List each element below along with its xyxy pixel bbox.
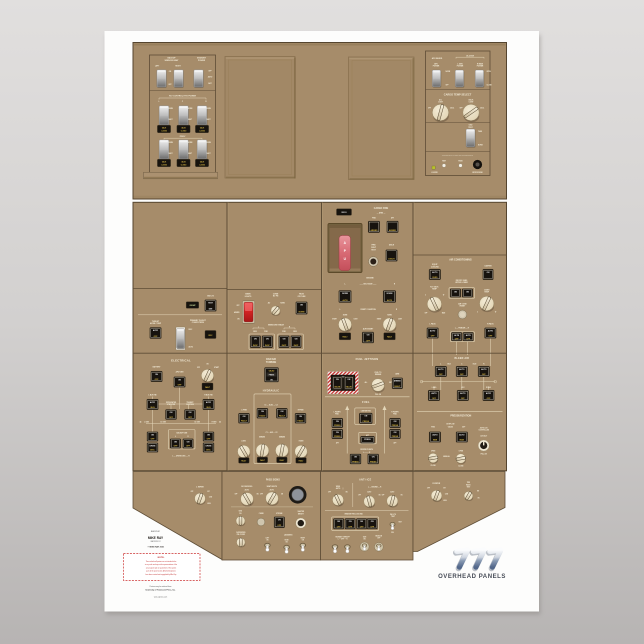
svg-text:AUTO: AUTO — [432, 271, 438, 274]
svg-text:OFF: OFF — [427, 488, 430, 490]
svg-text:ARM: ARM — [395, 373, 399, 376]
svg-text:PRESS: PRESS — [334, 436, 341, 438]
svg-text:BRIGHT: BRIGHT — [298, 514, 304, 516]
svg-text:ALTN: ALTN — [387, 299, 393, 302]
svg-text:R WIPER: R WIPER — [432, 483, 440, 485]
svg-text:COMPUTERS: COMPUTERS — [192, 322, 205, 324]
svg-text:CONT: CONT — [354, 319, 358, 321]
svg-text:FAULT: FAULT — [394, 385, 401, 388]
svg-text:ASYM COMP: ASYM COMP — [150, 322, 162, 325]
svg-text:L: L — [258, 326, 259, 328]
svg-text:RAM AIR: RAM AIR — [266, 358, 276, 361]
svg-text:L: L — [344, 283, 345, 285]
svg-text:AUTO: AUTO — [430, 329, 436, 332]
svg-text:NOSE: NOSE — [285, 539, 289, 541]
svg-text:OFF: OFF — [358, 495, 361, 497]
svg-text:WINDOW HEAT: WINDOW HEAT — [165, 59, 180, 62]
svg-text:COOL: COOL — [450, 108, 454, 110]
svg-text:CLOSED: CLOSED — [161, 130, 167, 132]
svg-text:DRIVE: DRIVE — [206, 445, 213, 447]
svg-text:WINDOW FWD LOGO IND: WINDOW FWD LOGO IND — [344, 514, 363, 516]
svg-text:Posters may be ordered from: Posters may be ordered from — [150, 585, 172, 588]
svg-text:CLOSED: CLOSED — [161, 164, 167, 166]
svg-text:START / IGNITION: START / IGNITION — [360, 308, 376, 311]
svg-text:ISLN: ISLN — [150, 407, 155, 409]
svg-text:FUEL JETTISON: FUEL JETTISON — [356, 357, 379, 361]
svg-text:ON: ON — [206, 364, 208, 366]
svg-text:—— EEC MODE ——: —— EEC MODE —— — [360, 283, 377, 285]
svg-text:MIKE RAY: MIKE RAY — [148, 536, 164, 540]
svg-text:LEFT: LEFT — [266, 537, 270, 539]
svg-text:ISLN: ISLN — [206, 407, 211, 409]
svg-text:POWER: POWER — [198, 60, 206, 62]
svg-text:ON: ON — [256, 493, 258, 495]
svg-text:NORM: NORM — [342, 293, 348, 295]
svg-text:◎: ◎ — [140, 421, 142, 424]
svg-text:OFF: OFF — [382, 495, 385, 497]
svg-text:IND LTS: IND LTS — [207, 296, 214, 298]
svg-text:DISCH: DISCH — [389, 259, 396, 261]
svg-text:L BUS TIE: L BUS TIE — [148, 394, 157, 396]
svg-text:INT: INT — [443, 488, 445, 490]
svg-text:L — DRIVE DISC — R: L — DRIVE DISC — R — [172, 456, 190, 458]
svg-text:OFF: OFF — [235, 493, 238, 495]
svg-text:ON: ON — [237, 318, 239, 320]
svg-text:CLOSE: CLOSE — [458, 465, 463, 467]
svg-text:PULL ON: PULL ON — [375, 394, 381, 396]
svg-text:OXYGEN: OXYGEN — [298, 296, 306, 298]
svg-text:WING: WING — [336, 486, 341, 488]
svg-text:AUTO: AUTO — [459, 433, 465, 436]
svg-text:AUTO: AUTO — [459, 368, 465, 371]
svg-text:INT: INT — [477, 491, 479, 493]
svg-text:R BUS TIE: R BUS TIE — [204, 394, 213, 396]
svg-text:SHUT: SHUT — [188, 153, 192, 155]
svg-text:PRESS: PRESS — [269, 375, 274, 377]
svg-text:AUTO: AUTO — [431, 392, 437, 395]
svg-text:ELECTRICAL: ELECTRICAL — [171, 359, 191, 363]
svg-text:◎: ◎ — [219, 421, 221, 424]
svg-text:DIM: DIM — [209, 309, 213, 311]
svg-text:NORM: NORM — [168, 108, 173, 110]
svg-text:OFF: OFF — [328, 492, 331, 494]
svg-text:L PUMPS: L PUMPS — [333, 411, 340, 413]
svg-text:AUTO: AUTO — [460, 392, 466, 395]
svg-text:POWER: POWER — [457, 66, 464, 68]
svg-text:OFF: OFF — [237, 305, 240, 307]
svg-text:AIR CONDITIONING: AIR CONDITIONING — [449, 258, 472, 261]
svg-text:DISCH: DISCH — [389, 245, 395, 247]
svg-text:COOL: COOL — [480, 108, 484, 110]
svg-text:R ENG: R ENG — [486, 387, 492, 389]
svg-text:DRIVE: DRIVE — [150, 445, 157, 447]
svg-text:NORM: NORM — [168, 142, 173, 144]
svg-text:CLOSED: CLOSED — [199, 130, 205, 132]
svg-text:NORM: NORM — [188, 108, 193, 110]
svg-text:INOP: INOP — [282, 345, 287, 347]
svg-text:MICROPHONE: MICROPHONE — [472, 172, 482, 174]
svg-text:ON: ON — [363, 539, 365, 541]
svg-text:CONTROLLED: CONTROLLED — [478, 429, 489, 431]
svg-text:PULL ON: PULL ON — [481, 454, 487, 456]
svg-text:OFF: OFF — [425, 313, 428, 315]
svg-text:TEST: TEST — [467, 486, 471, 488]
svg-text:SEAT BELTS: SEAT BELTS — [267, 485, 278, 488]
svg-text:ISLN: ISLN — [473, 363, 476, 365]
svg-text:BATTERY: BATTERY — [153, 366, 162, 369]
svg-text:PRESS: PRESS — [370, 461, 377, 463]
svg-text:FAULT: FAULT — [279, 415, 286, 418]
svg-text:POWER: POWER — [433, 66, 440, 68]
svg-text:L: L — [175, 436, 176, 438]
svg-text:NORM: NORM — [387, 293, 393, 295]
svg-text:CHIME: CHIME — [259, 513, 264, 515]
svg-text:ALTN: ALTN — [454, 334, 460, 337]
svg-text:CLOSE: CLOSE — [431, 465, 436, 467]
svg-text:© MIKE RAY 2001: © MIKE RAY 2001 — [148, 545, 165, 548]
svg-text:R PACK: R PACK — [487, 323, 494, 326]
svg-text:SHUT: SHUT — [188, 119, 192, 121]
svg-text:VALVE: VALVE — [334, 386, 341, 389]
svg-text:UNLKD: UNLKD — [269, 371, 275, 373]
svg-text:ON: ON — [401, 495, 403, 497]
svg-text:NO SMOKING: NO SMOKING — [241, 486, 253, 488]
svg-text:SHUT: SHUT — [168, 119, 172, 121]
svg-text:OPEN: OPEN — [487, 71, 491, 73]
svg-text:MAN: MAN — [433, 439, 438, 442]
svg-text:DIM: DIM — [391, 532, 393, 534]
svg-text:HIGH: HIGH — [443, 500, 446, 502]
svg-text:UPPER LOWER: UPPER LOWER — [455, 282, 468, 284]
svg-text:OFF: OFF — [168, 84, 171, 86]
svg-text:OVERSPEED: OVERSPEED — [236, 532, 246, 534]
svg-text:DISC: DISC — [150, 450, 155, 452]
svg-text:AUTOSTART: AUTOSTART — [363, 327, 374, 330]
svg-text:CENTER FWD: CENTER FWD — [361, 410, 372, 412]
svg-text:CARGO TEMP SELECT: CARGO TEMP SELECT — [444, 94, 472, 97]
svg-text:PASS SIGNS: PASS SIGNS — [266, 478, 280, 481]
svg-text:CLOSED: CLOSED — [181, 130, 187, 132]
svg-text:L ——— R: L ——— R — [363, 452, 371, 454]
svg-text:HYDRAULIC: HYDRAULIC — [263, 389, 280, 392]
svg-text:OFF: OFF — [428, 108, 431, 110]
svg-text:GASPER: GASPER — [484, 265, 492, 268]
svg-text:WINDOW HEAT: WINDOW HEAT — [268, 323, 285, 326]
svg-text:FUEL: FUEL — [362, 401, 370, 404]
svg-text:www.utpress.com: www.utpress.com — [154, 595, 168, 598]
svg-text:CLOSED: CLOSED — [181, 164, 187, 166]
svg-text:ARMED: ARMED — [394, 379, 402, 382]
svg-text:CLOSED: CLOSED — [199, 164, 205, 166]
svg-text:ON: ON — [478, 498, 480, 500]
svg-text:OFF: OFF — [191, 491, 194, 493]
svg-text:OPEN: OPEN — [431, 450, 435, 452]
svg-text:AUTO: AUTO — [438, 368, 444, 371]
svg-text:SET: SET — [389, 382, 392, 384]
svg-text:DISC: DISC — [206, 450, 211, 452]
svg-text:INT: INT — [207, 491, 209, 493]
svg-text:LIGHTS: LIGHTS — [245, 296, 252, 298]
svg-text:NORM: NORM — [206, 108, 211, 110]
svg-text:APU GEN: APU GEN — [176, 371, 184, 374]
svg-text:L PRIM: L PRIM — [241, 410, 247, 412]
svg-text:NORM: NORM — [478, 145, 483, 147]
svg-text:OPEN: OPEN — [459, 450, 463, 452]
svg-text:LOUVRE: LOUVRE — [431, 172, 437, 174]
svg-text:DISCH: DISCH — [342, 212, 348, 214]
svg-text:L — ENGINE — R: L — ENGINE — R — [368, 487, 382, 489]
svg-text:R PUMPS: R PUMPS — [391, 411, 398, 413]
svg-text:ON: ON — [302, 539, 304, 541]
svg-text:AUTO: AUTO — [153, 329, 159, 332]
svg-text:SIDE: SIDE — [293, 331, 297, 333]
svg-text:AUTO: AUTO — [486, 392, 492, 395]
svg-text:OFF: OFF — [446, 85, 449, 87]
svg-text:PBL FLYER: PBL FLYER — [237, 534, 246, 536]
svg-text:PRSOV: PRSOV — [180, 136, 187, 138]
svg-text:SHUT: SHUT — [168, 153, 172, 155]
svg-text:CLOSE: CLOSE — [487, 85, 492, 87]
svg-text:SHUT: SHUT — [206, 119, 210, 121]
svg-text:OVERHEAD PANELS: OVERHEAD PANELS — [438, 574, 506, 580]
svg-text:L GEN: L GEN — [144, 422, 149, 424]
svg-text:OIL DOOR: OIL DOOR — [466, 56, 475, 58]
svg-text:ENGINE: ENGINE — [366, 278, 374, 280]
svg-text:NORM: NORM — [299, 312, 305, 314]
svg-text:NORM: NORM — [188, 142, 193, 144]
svg-text:OFF: OFF — [460, 108, 463, 110]
svg-text:AUTO: AUTO — [150, 401, 156, 404]
svg-text:CARGO FIRE: CARGO FIRE — [374, 207, 389, 210]
svg-text:NORM: NORM — [206, 142, 211, 144]
svg-text:OFF: OFF — [260, 493, 263, 495]
svg-text:PRESS: PRESS — [364, 439, 371, 441]
svg-text:University of Tennessee Press,: University of Tennessee Press, Inc. — [145, 589, 176, 592]
svg-text:IND LTS: IND LTS — [390, 514, 396, 516]
svg-text:NO PN: NO PN — [273, 296, 279, 298]
svg-text:CENTER PUMPS: CENTER PUMPS — [360, 449, 373, 451]
svg-text:ANTI-ICE: ANTI-ICE — [359, 478, 372, 481]
svg-text:ON: ON — [239, 513, 241, 515]
svg-text:INOP: INOP — [265, 345, 270, 347]
svg-text:AUTO: AUTO — [481, 368, 487, 371]
svg-text:ALTN: ALTN — [466, 334, 472, 337]
svg-text:VALVE: VALVE — [346, 386, 353, 389]
svg-text:AUTO: AUTO — [206, 401, 212, 404]
svg-text:ON: ON — [379, 495, 381, 497]
svg-text:TURBINE: TURBINE — [266, 362, 277, 364]
svg-text:AUTO: AUTO — [488, 329, 494, 332]
svg-text:COOLING: COOLING — [431, 266, 440, 268]
svg-text:POWER: POWER — [477, 66, 484, 68]
svg-text:C: C — [477, 312, 478, 314]
svg-text:TEST: TEST — [442, 161, 446, 163]
svg-text:R PRIM: R PRIM — [298, 410, 304, 412]
svg-text:OFF: OFF — [377, 538, 380, 540]
svg-text:TIRE: TIRE — [467, 482, 470, 484]
svg-text:ARMED: ARMED — [371, 229, 379, 232]
svg-text:BLEED AIR: BLEED AIR — [454, 357, 469, 360]
svg-text:CONT: CONT — [398, 319, 402, 321]
svg-text:PRESS: PRESS — [363, 421, 370, 423]
svg-text:HIGH: HIGH — [207, 503, 210, 505]
svg-text:L — OFF — R: L — OFF — R — [338, 539, 349, 541]
svg-text:FUEL TO: FUEL TO — [375, 372, 383, 374]
svg-text:R GEN: R GEN — [212, 422, 217, 424]
svg-text:TEST: TEST — [399, 522, 403, 524]
svg-text:ON: ON — [345, 492, 347, 494]
svg-text:PRESS: PRESS — [352, 461, 359, 463]
svg-text:C1 — ELEC — C2: C1 — ELEC — C2 — [264, 404, 277, 406]
svg-text:L PACK: L PACK — [430, 323, 437, 326]
svg-text:SHUT: SHUT — [206, 153, 210, 155]
svg-text:FAULT: FAULT — [298, 420, 305, 423]
svg-text:SIDE: SIDE — [253, 331, 257, 333]
svg-text:C1 GEN: C1 GEN — [160, 422, 166, 424]
svg-text:OFF: OFF — [208, 71, 211, 73]
svg-text:RESET: RESET — [460, 306, 467, 308]
svg-text:FAULT: FAULT — [259, 415, 266, 418]
svg-text:STBY PWR: STBY PWR — [167, 404, 176, 406]
svg-text:ON: ON — [266, 539, 268, 541]
svg-text:MAN: MAN — [460, 439, 465, 442]
svg-text:OVRD: OVRD — [432, 277, 438, 279]
svg-text:NORM: NORM — [446, 71, 451, 73]
svg-text:L: L — [339, 309, 340, 311]
svg-text:C2 GEN: C2 GEN — [194, 422, 200, 424]
svg-text:— ARM —: — ARM — — [377, 211, 386, 214]
svg-text:L: L — [158, 101, 159, 103]
svg-text:FAULT: FAULT — [241, 420, 248, 423]
svg-text:PRESS: PRESS — [334, 425, 341, 427]
svg-text:INOP: INOP — [253, 345, 258, 347]
svg-text:STROBE: STROBE — [276, 513, 282, 515]
svg-text:LANDING: LANDING — [284, 533, 293, 536]
svg-text:RIGHT: RIGHT — [301, 537, 305, 539]
svg-text:PRESS: PRESS — [392, 425, 399, 427]
svg-text:PRESS: PRESS — [392, 436, 399, 438]
svg-text:NOTE:: NOTE: — [158, 557, 165, 559]
svg-text:INOP: INOP — [294, 345, 299, 347]
svg-text:C: C — [425, 295, 426, 297]
svg-text:OFF: OFF — [197, 367, 200, 369]
svg-text:FLT CONTROL HYD POWER: FLT CONTROL HYD POWER — [169, 95, 196, 97]
svg-text:AUTO: AUTO — [432, 433, 438, 436]
svg-text:ALTN: ALTN — [343, 299, 349, 302]
svg-text:ISLN: ISLN — [447, 363, 450, 365]
svg-text:TEST: TEST — [208, 302, 214, 304]
svg-text:ON: ON — [281, 493, 283, 495]
svg-text:APU BLEED: APU BLEED — [432, 57, 443, 60]
svg-text:ON: ON — [286, 541, 288, 543]
svg-text:ARMED: ARMED — [389, 229, 397, 232]
svg-text:TEST: TEST — [391, 516, 395, 518]
svg-text:L WIPER: L WIPER — [196, 486, 204, 488]
svg-text:PRESSURIZATION: PRESSURIZATION — [450, 415, 471, 418]
svg-text:OUTFLOW: OUTFLOW — [446, 424, 455, 426]
svg-text:SYSTEMS: SYSTEMS — [186, 404, 194, 406]
svg-text:L: L — [440, 363, 441, 365]
